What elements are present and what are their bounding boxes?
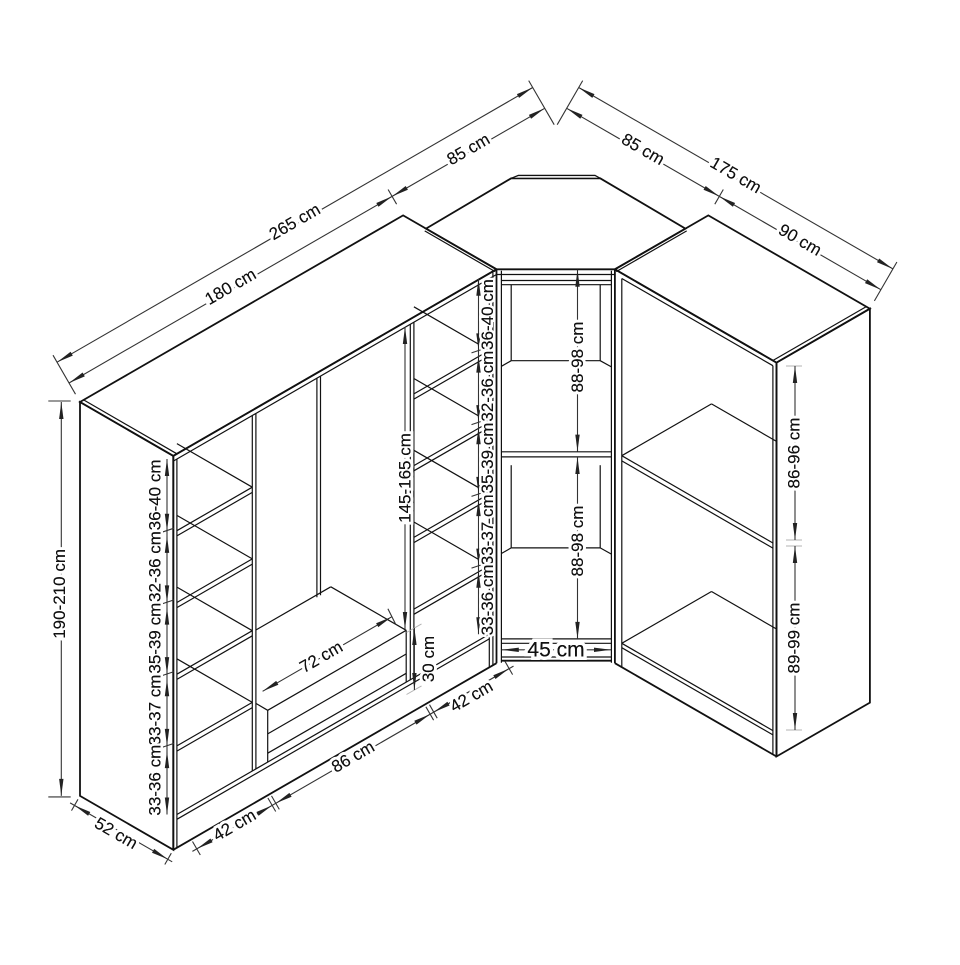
svg-text:145-165 cm: 145-165 cm bbox=[396, 433, 415, 523]
svg-text:35-39 cm: 35-39 cm bbox=[146, 603, 165, 674]
svg-text:33-37 cm: 33-37 cm bbox=[478, 494, 497, 565]
svg-text:32-36 cm: 32-36 cm bbox=[146, 531, 165, 602]
svg-text:88-98 cm: 88-98 cm bbox=[568, 506, 587, 577]
svg-text:35-39 cm: 35-39 cm bbox=[478, 423, 497, 494]
svg-text:89-99 cm: 89-99 cm bbox=[785, 603, 804, 674]
svg-text:45 cm: 45 cm bbox=[527, 639, 584, 662]
svg-text:30 cm: 30 cm bbox=[419, 636, 438, 682]
svg-text:190-210 cm: 190-210 cm bbox=[50, 549, 69, 639]
svg-text:86-96 cm: 86-96 cm bbox=[785, 418, 804, 489]
svg-text:33-36 cm: 33-36 cm bbox=[478, 564, 497, 635]
svg-text:33-36 cm: 33-36 cm bbox=[146, 745, 165, 816]
svg-text:32-36 cm: 32-36 cm bbox=[478, 351, 497, 422]
svg-text:36-40 cm: 36-40 cm bbox=[146, 459, 165, 530]
svg-text:88-98 cm: 88-98 cm bbox=[568, 322, 587, 393]
svg-text:33-37 cm: 33-37 cm bbox=[146, 675, 165, 746]
svg-text:36-40 cm: 36-40 cm bbox=[478, 279, 497, 350]
